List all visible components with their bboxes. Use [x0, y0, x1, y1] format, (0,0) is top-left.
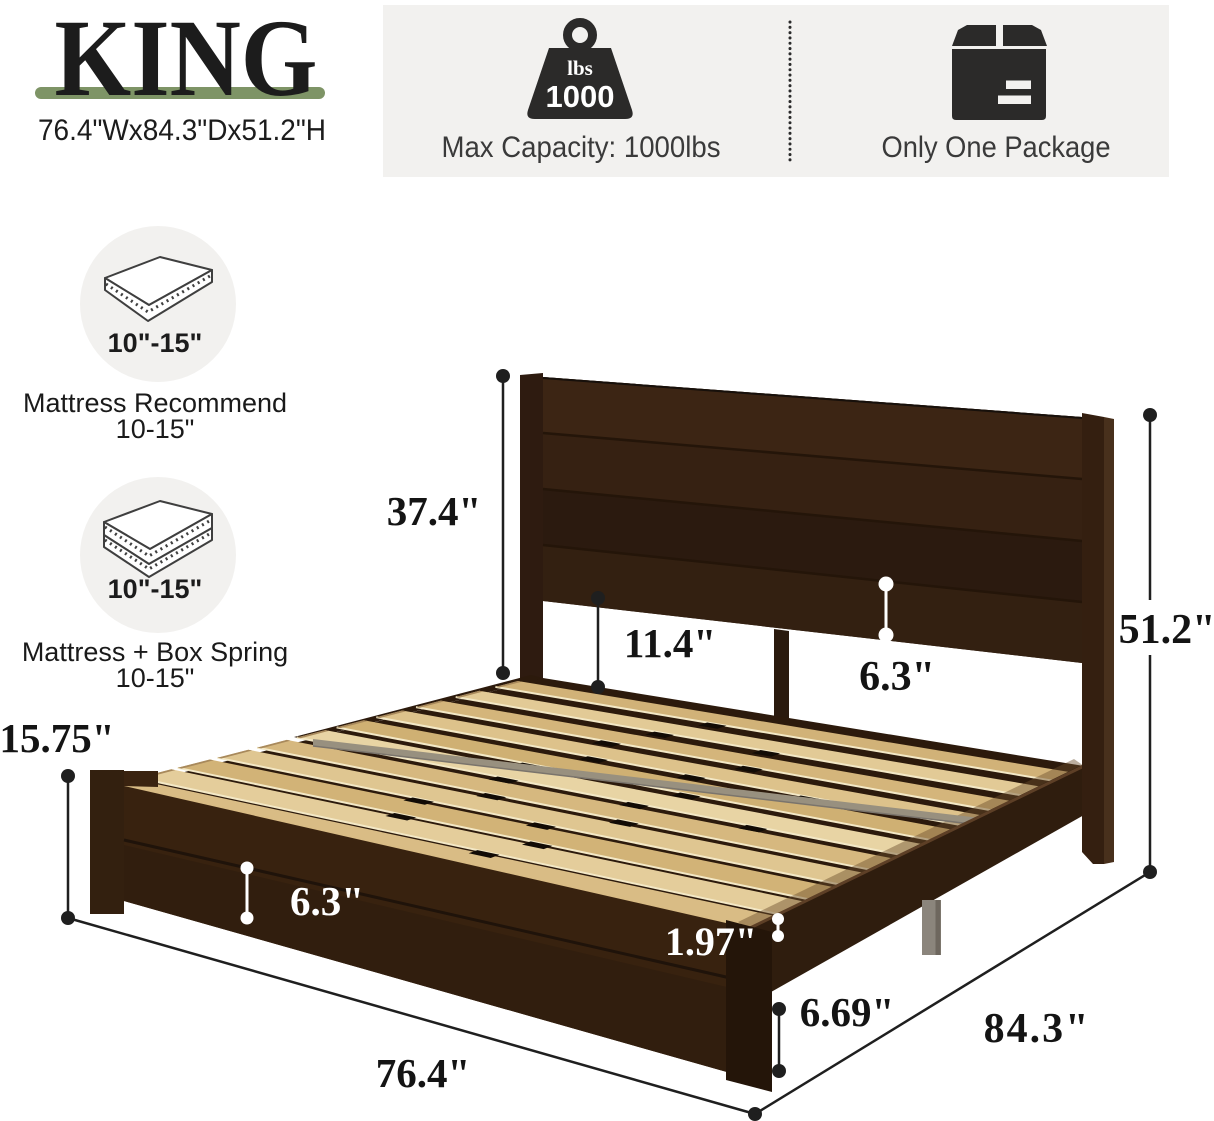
svg-text:KING: KING [55, 0, 318, 119]
svg-text:6.3": 6.3" [290, 878, 364, 924]
svg-text:15.75": 15.75" [0, 715, 115, 761]
svg-text:Only One Package: Only One Package [882, 131, 1111, 164]
svg-text:lbs: lbs [567, 56, 593, 80]
svg-text:6.69": 6.69" [800, 989, 895, 1035]
svg-text:Max Capacity: 1000lbs: Max Capacity: 1000lbs [442, 131, 721, 164]
svg-text:51.2": 51.2" [1119, 607, 1214, 653]
svg-text:76.4": 76.4" [376, 1050, 471, 1096]
svg-text:1.97": 1.97" [665, 919, 757, 964]
svg-text:76.4"Wx84.3"Dx51.2"H: 76.4"Wx84.3"Dx51.2"H [38, 114, 326, 147]
svg-text:10"-15": 10"-15" [108, 574, 203, 604]
svg-text:6.3": 6.3" [859, 654, 935, 700]
svg-text:11.4": 11.4" [624, 620, 716, 666]
svg-text:10"-15": 10"-15" [108, 328, 203, 358]
svg-text:10-15": 10-15" [116, 663, 195, 693]
svg-text:84.3": 84.3" [984, 1006, 1091, 1052]
svg-text:1000: 1000 [546, 79, 615, 114]
svg-text:37.4": 37.4" [387, 488, 482, 534]
svg-text:10-15": 10-15" [116, 414, 195, 444]
